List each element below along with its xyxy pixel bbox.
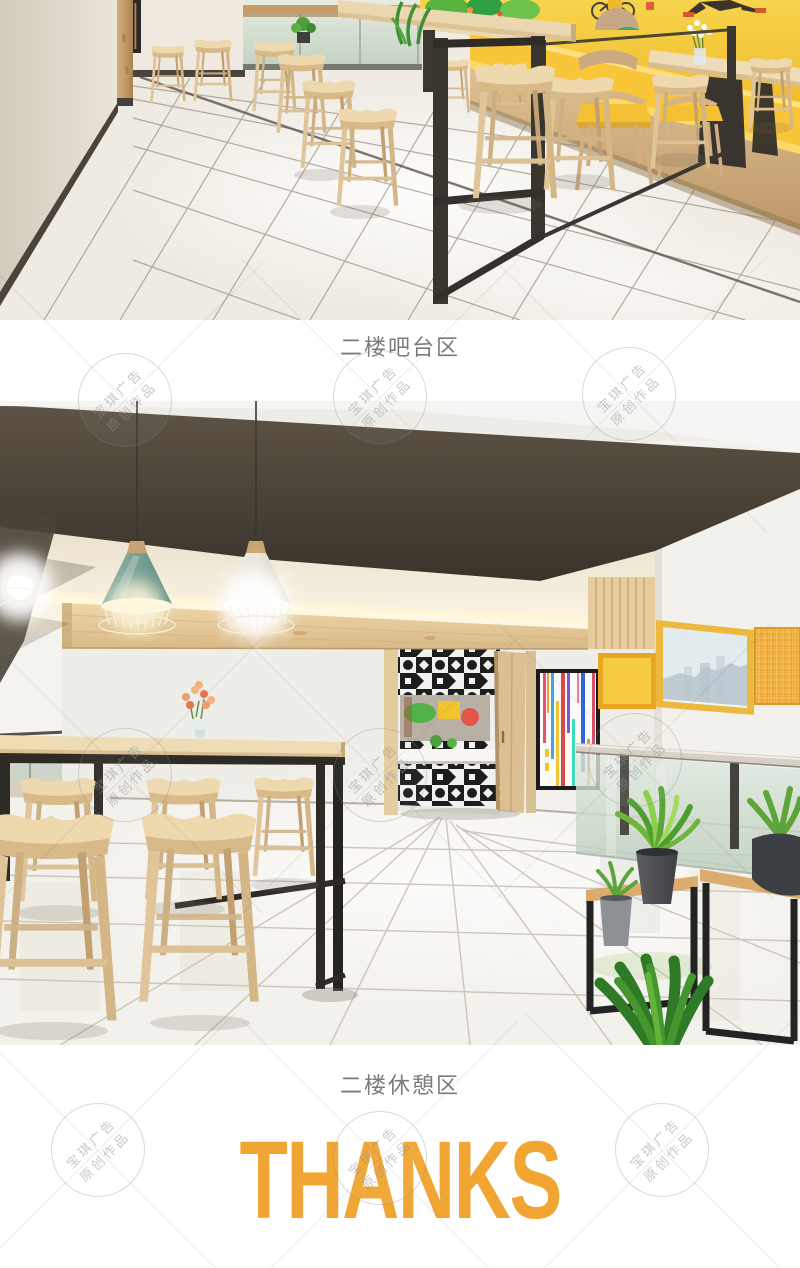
caption-lounge-area: 二楼休憩区 — [0, 1071, 800, 1101]
photo-bar-area — [0, 0, 800, 320]
caption-bar-area: 二楼吧台区 — [0, 333, 800, 363]
washroom-doorway — [384, 647, 536, 820]
washroom-door — [494, 651, 526, 813]
wood-slat-wall — [588, 577, 655, 649]
photo-lounge-area — [0, 401, 800, 1045]
mesh-panel — [755, 628, 800, 704]
caption-text: 二楼吧台区 — [340, 335, 460, 360]
window — [656, 620, 754, 715]
mirror — [400, 695, 490, 741]
presentation-page: 二楼吧台区 — [0, 0, 800, 1268]
yellow-panel — [598, 653, 656, 709]
wood-pillar — [117, 0, 133, 106]
menu-panel — [133, 0, 141, 53]
thanks-text: THANKS — [239, 1136, 560, 1226]
caption-text: 二楼休憩区 — [340, 1073, 460, 1098]
thanks-footer: THANKS — [0, 1136, 800, 1226]
